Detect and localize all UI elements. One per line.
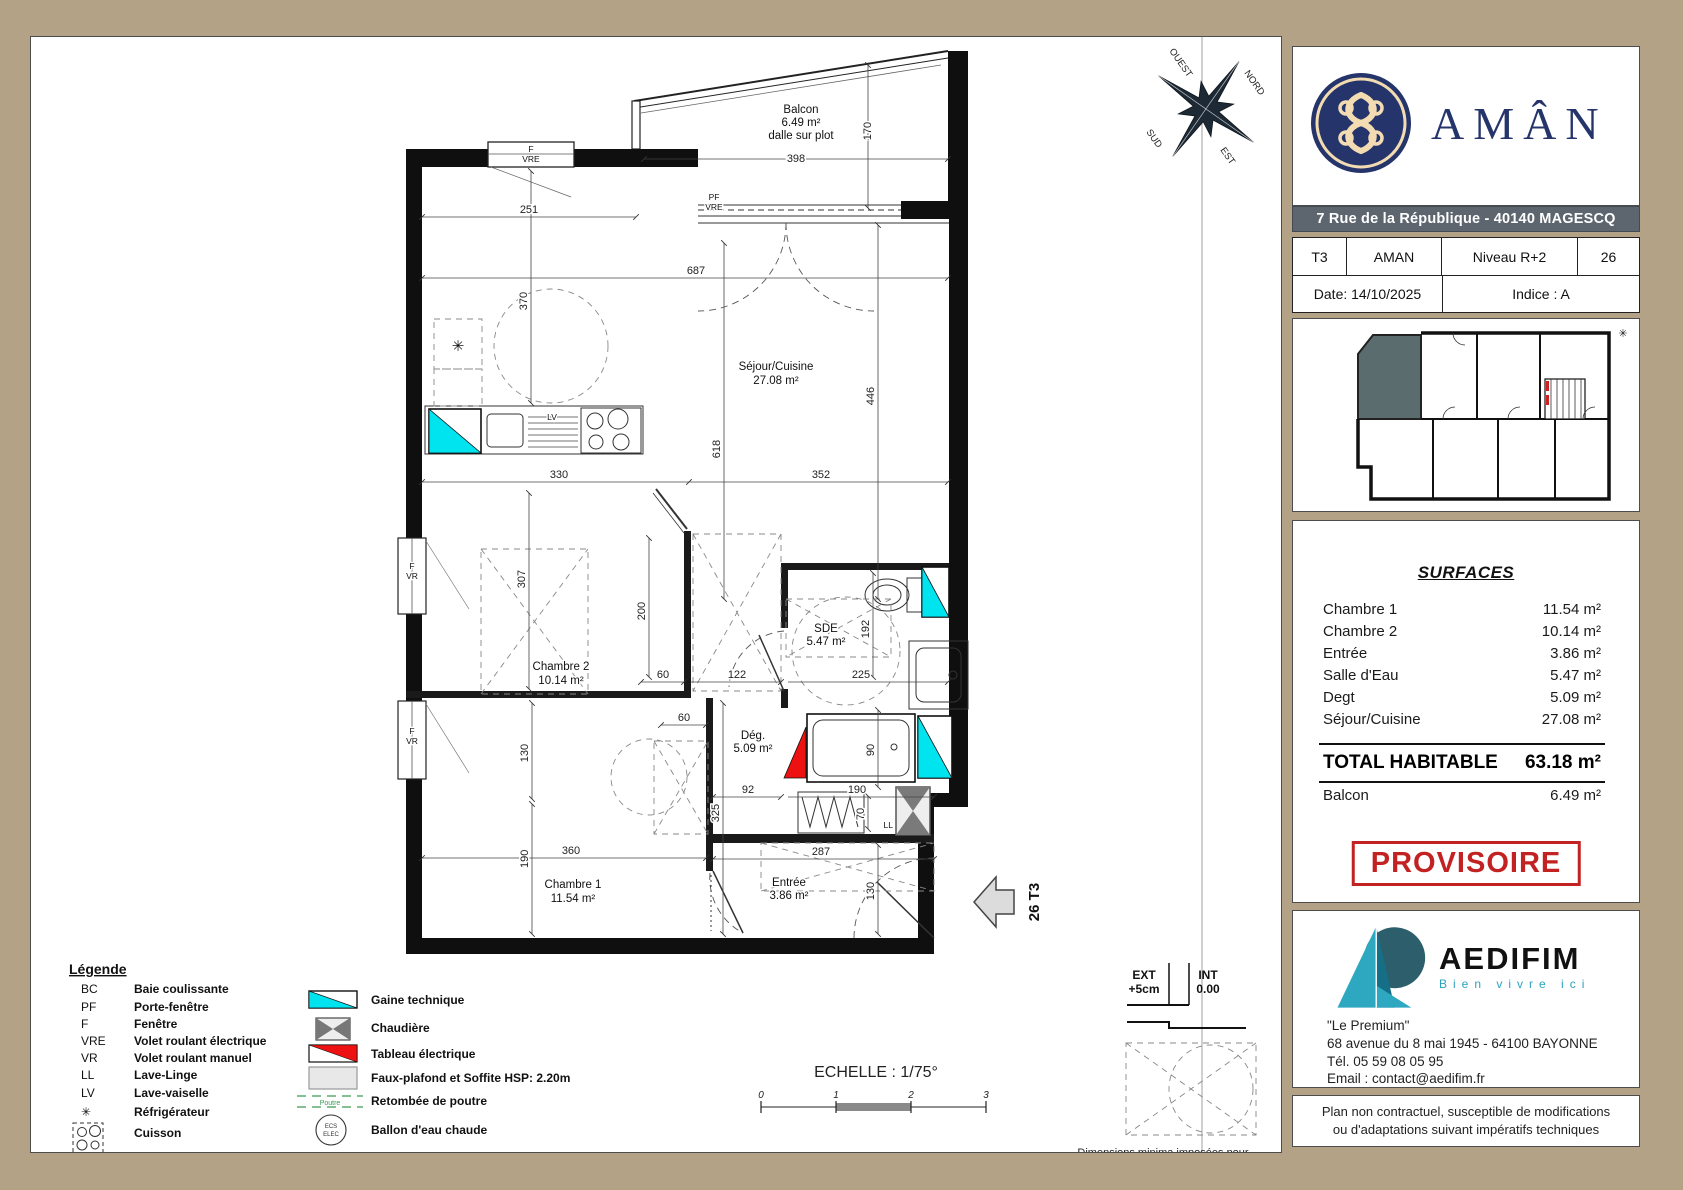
gaine-technique-legend-icon [309,991,357,1008]
legend-label-tableau: Tableau électrique [371,1047,476,1061]
door-label-vre: VRE [705,202,723,212]
chaudiere-legend-icon [316,1018,350,1040]
level: Niveau R+2 [1442,238,1578,275]
room-chambre1: Chambre 1 [545,879,602,891]
legend-label-chaudiere: Chaudière [371,1021,430,1035]
floor-plan-drawing: F VRE PF VRE F VR F VR [31,37,1281,1152]
door-label-pf: PF [709,192,720,202]
room-chambre2: Chambre 2 [533,661,590,673]
disclaimer-line2: ou d'adaptations suivant impératifs tech… [1293,1121,1639,1139]
project-address-bar: 7 Rue de la République - 40140 MAGESCQ [1292,206,1640,232]
room-deg: Dég. [741,730,765,742]
agency-address: "Le Premium" 68 avenue du 8 mai 1945 - 6… [1293,1015,1639,1088]
surface-row: Salle d'Eau5.47 m² [1323,667,1601,682]
window-label-vre: VRE [522,154,540,164]
ll-label: LL [884,820,894,830]
agency-name: AEDIFIM [1439,943,1590,974]
dim-687: 687 [687,265,705,277]
legend-label-pf: Porte-fenêtre [134,1000,209,1014]
window-label-f2: F [409,561,414,571]
dim-307: 307 [516,570,528,588]
legend-label-lv: Lave-vaiselle [134,1086,209,1100]
window-label-vr3: VR [406,736,418,746]
surface-row: Chambre 210.14 m² [1323,623,1601,638]
poutre-label: Poutre [320,1100,341,1107]
surfaces-panel: SURFACES Chambre 111.54 m² Chambre 210.1… [1292,520,1640,903]
toilet-icon [865,579,909,611]
disclaimer-panel: Plan non contractuel, susceptible de mod… [1292,1095,1640,1147]
scale-label: ECHELLE : 1/75° [814,1064,938,1081]
key-plan-drawing: ✳ [1293,319,1639,511]
surface-row: Chambre 111.54 m² [1323,601,1601,616]
interior-walls [406,531,949,871]
scale-3: 3 [983,1090,989,1101]
aman-emblem-icon [1309,71,1413,175]
legend-label-fridge: Réfrigérateur [134,1105,210,1119]
surface-row: Séjour/Cuisine27.08 m² [1323,711,1601,726]
legend-abbr-lv: LV [81,1086,95,1100]
ecs-line1: ECS [325,1124,337,1130]
info-row-2: Date: 14/10/2025 Indice : A [1293,276,1639,312]
compass-nord: NORD [1242,68,1267,97]
legend-title: Légende [69,961,127,977]
ecs-line2: ELEC [323,1132,339,1138]
window-label-vr2: VR [406,571,418,581]
key-plan-north-icon: ✳ [1618,328,1627,340]
legend-abbr-fridge: ✳ [81,1105,91,1119]
cuisson-icon [73,1123,103,1152]
threshold-ext: EXT [1132,968,1156,982]
compass-sud: SUD [1144,127,1165,150]
scale-2: 2 [907,1090,914,1101]
highlighted-unit [1358,335,1421,419]
scale-bar: ECHELLE : 1/75° 0 1 2 3 [758,1064,989,1113]
threshold-int: INT [1198,968,1218,982]
dim-225: 225 [852,669,870,681]
ballon-eau-chaude-legend-icon: ECS ELEC [316,1115,346,1145]
room-balcon: Balcon [783,104,818,116]
room-deg-area: 5.09 m² [734,743,773,755]
accessibility-note-1: Dimensions minima imposées pour [1077,1147,1249,1152]
surfaces-rows: Chambre 111.54 m² Chambre 210.14 m² Entr… [1323,601,1601,733]
total-value: 63.18 m² [1525,752,1601,774]
dim-251: 251 [520,204,538,216]
legend-abbr-vre: VRE [81,1034,106,1048]
legend-label-gaine: Gaine technique [371,993,465,1007]
room-entree-area: 3.86 m² [770,890,809,902]
dim-60b: 60 [678,712,690,724]
dim-130a: 130 [519,744,531,762]
info-table: T3 AMAN Niveau R+2 26 Date: 14/10/2025 I… [1292,237,1640,313]
total-label: TOTAL HABITABLE [1323,752,1498,774]
unit-arrow-label: 26 T3 [1026,883,1043,921]
legend-abbr-ll: LL [81,1068,95,1082]
legend-label-poutre: Retombée de poutre [371,1094,487,1108]
dim-122: 122 [728,669,746,681]
dim-70: 70 [855,808,867,820]
compass-ouest: OUEST [1167,46,1195,79]
legend-label-fauxplafond: Faux-plafond et Soffite HSP: 2.20m [371,1071,570,1085]
aedifim-logo-icon [1319,919,1439,1015]
dimension-lines [422,65,948,934]
threshold-ext-val: +5cm [1128,982,1159,996]
room-balcon-note: dalle sur plot [768,130,834,142]
legend-abbr-bc: BC [81,982,98,996]
agency-panel: AEDIFIM Bien vivre ici "Le Premium" 68 a… [1292,910,1640,1088]
dim-325: 325 [710,804,722,822]
key-plan-panel: ✳ [1292,318,1640,512]
agency-tagline: Bien vivre ici [1439,977,1590,991]
agency-line1: "Le Premium" [1327,1017,1639,1035]
room-balcon-area: 6.49 m² [782,117,821,129]
room-chambre1-area: 11.54 m² [551,893,596,905]
legend-label-vre: Volet roulant électrique [134,1034,267,1048]
agency-line3: Tél. 05 59 08 05 95 [1327,1053,1639,1071]
indice: Indice : A [1443,276,1639,312]
fridge-icon: ✳ [452,338,465,355]
program-name: AMAN [1347,238,1442,275]
lv-label: LV [547,412,557,422]
tableau-electrique-legend-icon [309,1045,357,1062]
dim-200: 200 [636,602,648,620]
stairs-icon [1545,379,1585,419]
legend-label-vr: Volet roulant manuel [134,1051,252,1065]
window-label-f3: F [409,726,414,736]
room-sde-area: 5.47 m² [807,636,846,648]
dim-130b: 130 [865,882,877,900]
agency-line2: 68 avenue du 8 mai 1945 - 64100 BAYONNE [1327,1035,1639,1053]
dim-190a: 190 [848,784,866,796]
dim-60a: 60 [657,669,669,681]
agency-line4: Email : contact@aedifim.fr [1327,1070,1639,1088]
scale-0: 0 [758,1090,764,1101]
scale-1: 1 [833,1090,839,1101]
balcony-row: Balcon 6.49 m² [1323,787,1601,804]
accessibility-zone [1126,1043,1256,1135]
surfaces-title: SURFACES [1293,563,1639,583]
legend-label-cuisson: Cuisson [134,1126,181,1140]
legend-label-f: Fenêtre [134,1017,178,1031]
brand-panel: AMÂN [1292,46,1640,206]
dim-287: 287 [812,846,830,858]
info-row-1: T3 AMAN Niveau R+2 26 [1293,238,1639,276]
threshold-detail: EXT +5cm INT 0.00 [1127,963,1246,1028]
room-entree: Entrée [772,877,806,889]
compass-est: EST [1218,145,1238,167]
window-label-f: F [528,144,533,154]
legend-label-bc: Baie coulissante [134,982,229,996]
dim-352: 352 [812,469,830,481]
brand-name: AMÂN [1431,97,1608,150]
dim-446: 446 [865,387,877,405]
plan-sheet: F VRE PF VRE F VR F VR [0,0,1683,1190]
provisoire-stamp: PROVISOIRE [1352,841,1581,886]
dim-170: 170 [862,122,874,140]
room-sejour-area: 27.08 m² [753,375,799,387]
legend-label-ballon: Ballon d'eau chaude [371,1123,488,1137]
unit-type: T3 [1293,238,1347,275]
dim-192: 192 [860,620,872,638]
disclaimer-line1: Plan non contractuel, susceptible de mod… [1293,1103,1639,1121]
compass-icon: NORD EST SUD OUEST [1144,46,1267,167]
dim-360: 360 [562,845,580,857]
tableau-electrique-icon [784,727,806,778]
date: Date: 14/10/2025 [1293,276,1443,312]
dim-90: 90 [865,744,877,756]
dim-330: 330 [550,469,568,481]
legend: Légende BC Baie coulissante PF Porte-fen… [69,961,570,1152]
room-chambre2-area: 10.14 m² [538,675,584,687]
lot-number: 26 [1578,238,1639,275]
dim-370: 370 [518,292,530,310]
surface-row: Entrée3.86 m² [1323,645,1601,660]
threshold-int-val: 0.00 [1196,982,1220,996]
surface-row: Degt5.09 m² [1323,689,1601,704]
legend-abbr-pf: PF [81,1000,96,1014]
room-sde: SDE [814,623,838,635]
legend-abbr-f: F [81,1017,88,1031]
room-sejour: Séjour/Cuisine [739,361,814,373]
legend-label-ll: Lave-Linge [134,1068,198,1082]
exterior-walls [406,51,968,954]
total-habitable-row: TOTAL HABITABLE 63.18 m² [1319,743,1605,783]
dim-398: 398 [787,153,805,165]
faux-plafond-legend-icon [309,1067,357,1089]
dim-190b: 190 [519,850,531,868]
unit-arrow: 26 T3 [974,877,1043,927]
retombee-poutre-legend-icon: Poutre [297,1096,363,1107]
legend-abbr-vr: VR [81,1051,98,1065]
floor-plan-panel: F VRE PF VRE F VR F VR [30,36,1282,1153]
dim-92: 92 [742,784,754,796]
dim-618: 618 [711,440,723,458]
shower-icon [807,714,915,782]
